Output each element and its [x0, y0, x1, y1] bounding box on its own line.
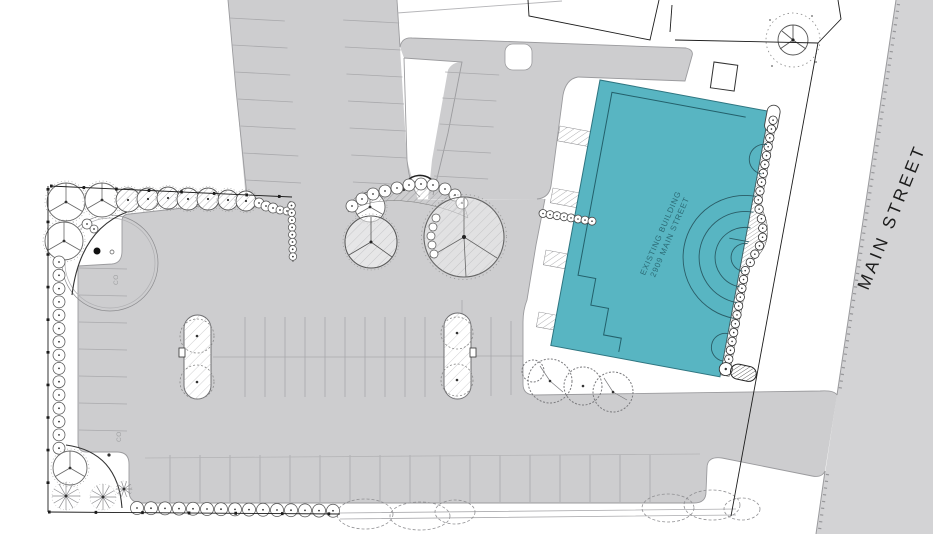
landscape-island-west	[179, 315, 214, 399]
light-pole-base	[470, 348, 476, 357]
landscape-island-east	[441, 313, 476, 399]
monument-sign	[718, 360, 758, 382]
utility-pad	[710, 62, 737, 91]
pavement-cove-notch	[505, 44, 532, 70]
corner-tree-icon	[766, 13, 820, 67]
light-pole-base	[179, 348, 185, 357]
site-plan-page: MAIN STREET	[0, 0, 933, 534]
neighbor-building-outline	[670, 5, 672, 32]
main-street-road: MAIN STREET	[816, 0, 933, 534]
neighbor-building-outline	[528, 0, 659, 40]
site-plan-drawing: MAIN STREET	[0, 0, 933, 534]
cleanout-label: CO	[113, 274, 120, 285]
utility-dot	[94, 248, 101, 255]
cleanout-label: CO	[116, 431, 123, 442]
existing-building: EXISTING BUILDING 2909 MAIN STREET	[551, 73, 791, 381]
neighbor-lot-line	[675, 0, 841, 43]
